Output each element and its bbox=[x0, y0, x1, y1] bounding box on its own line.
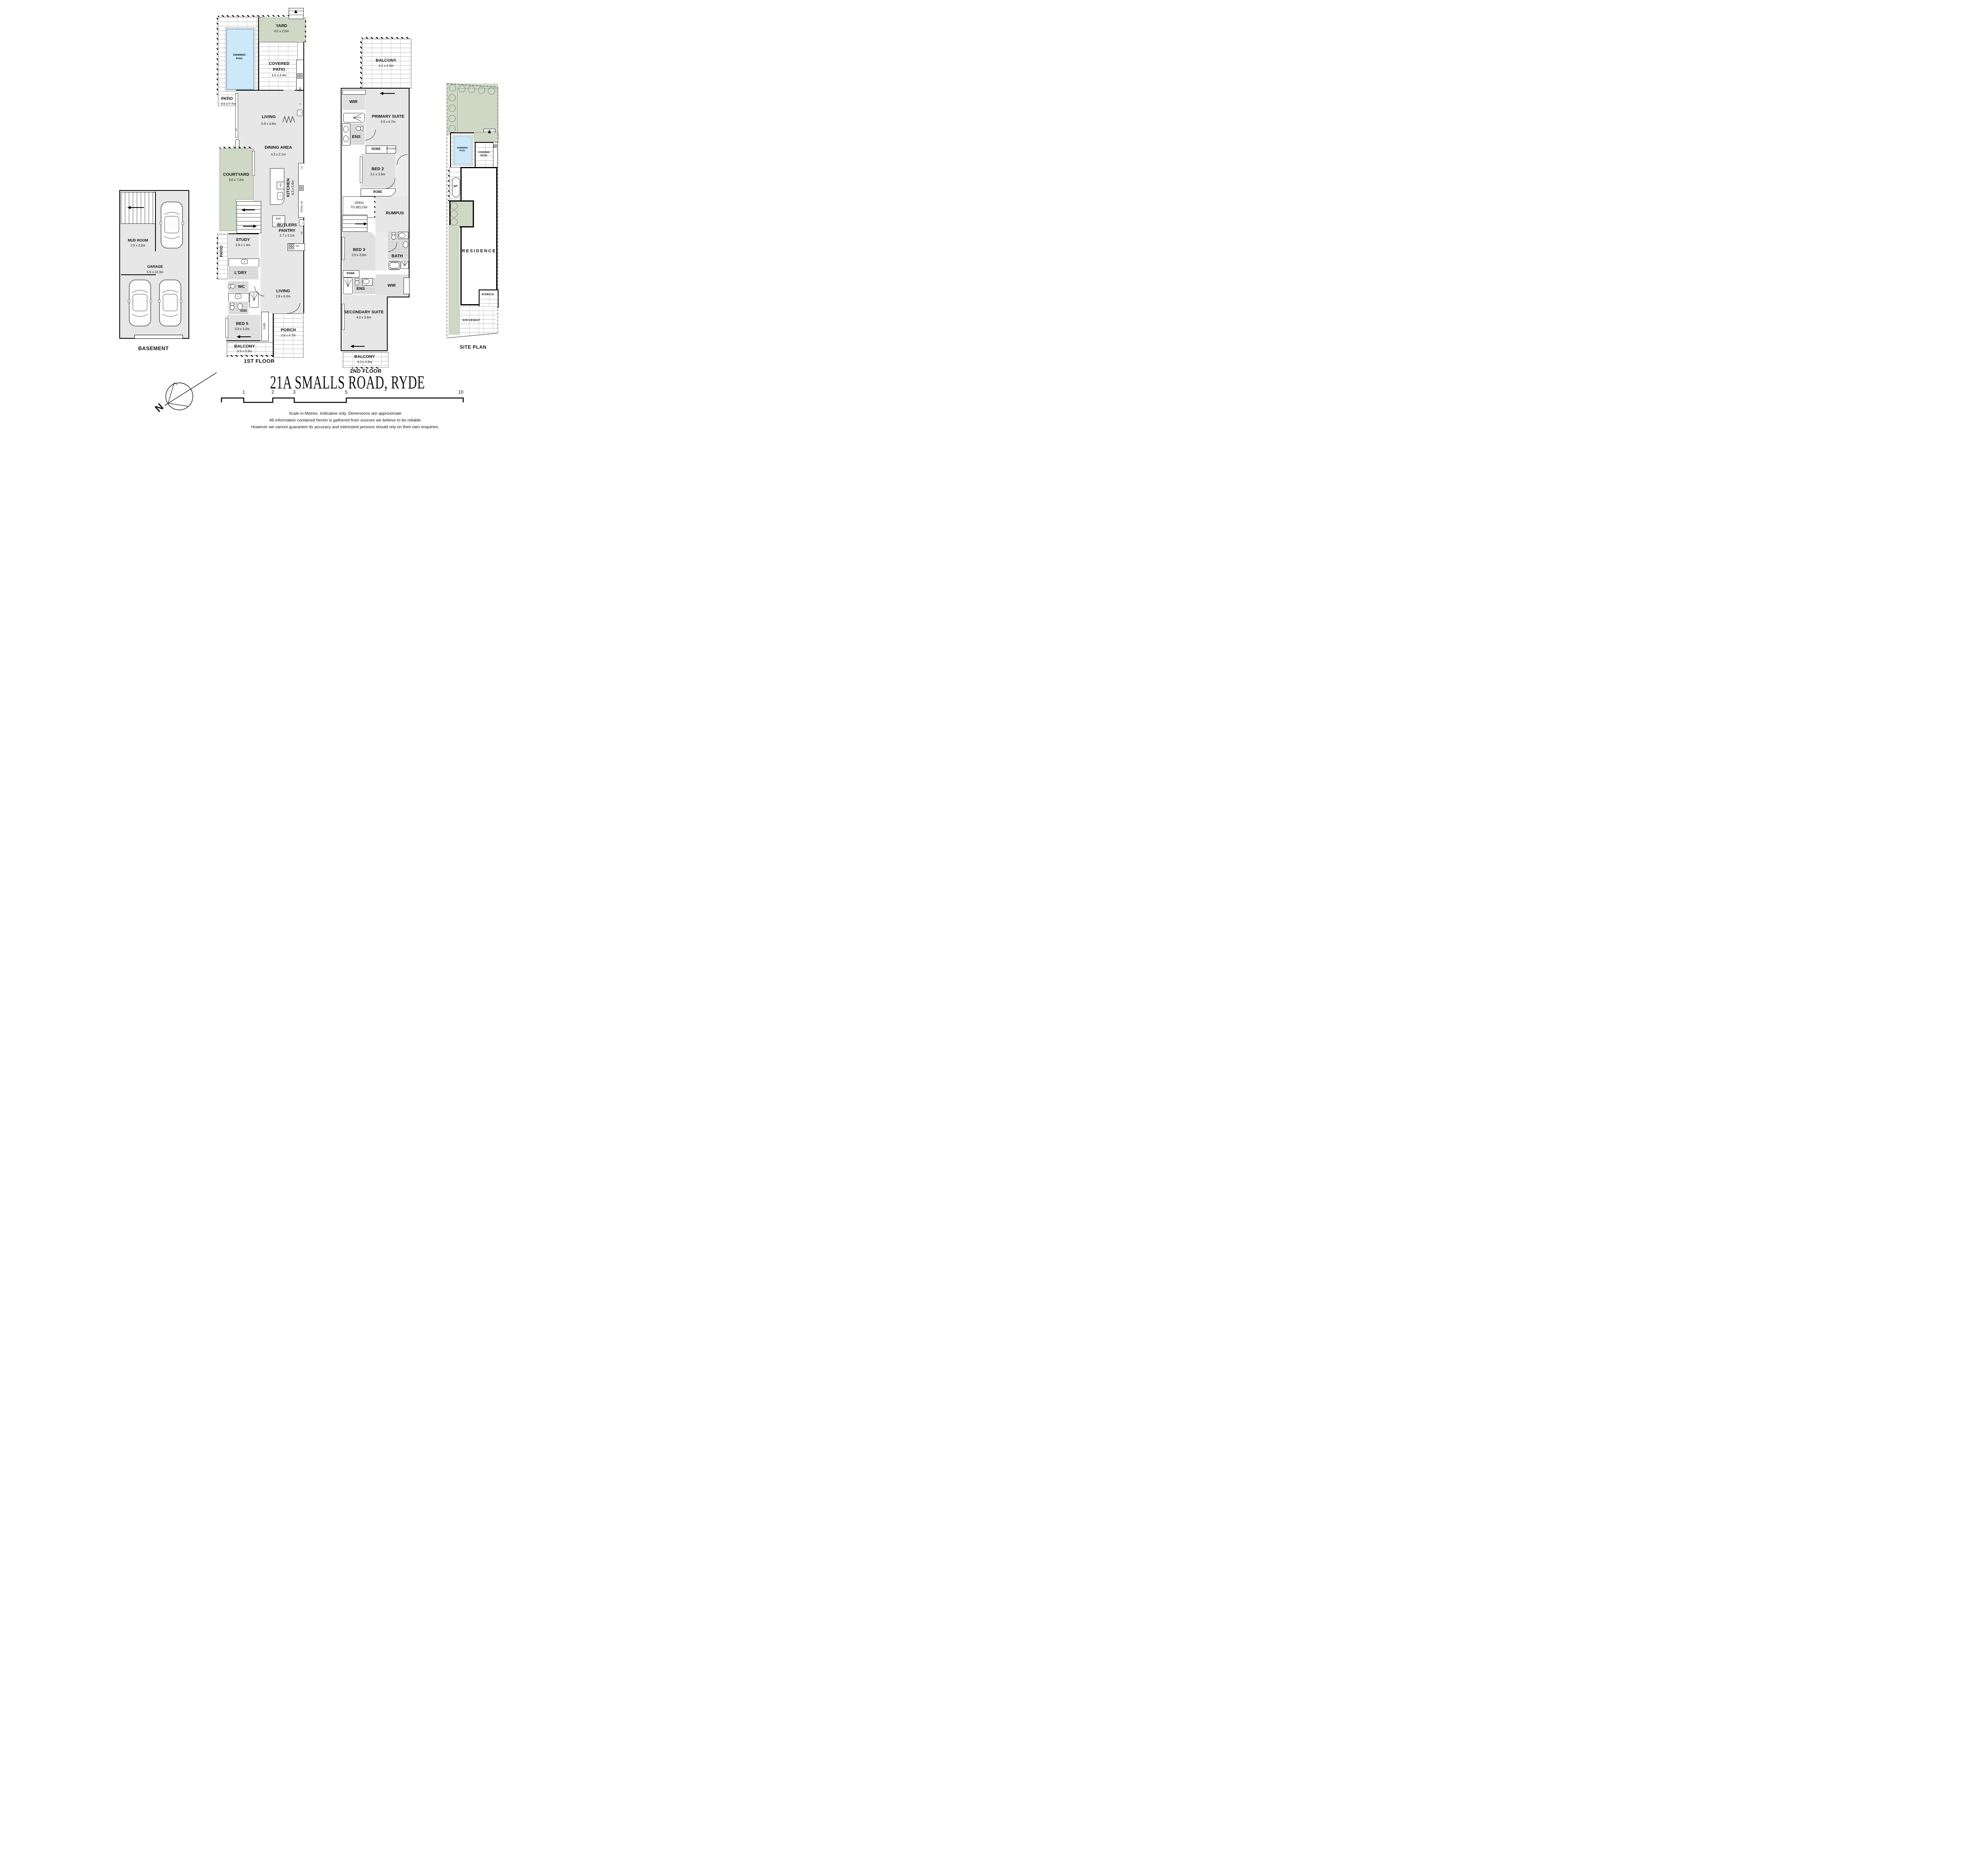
site-pool-label-1: SWIMMING bbox=[457, 147, 468, 149]
stair-arrow-head bbox=[241, 208, 245, 212]
first-floor-label: 1ST FLOOR bbox=[244, 358, 274, 364]
disclaimer-line-3: However we cannot guarantee its accuracy… bbox=[251, 425, 439, 429]
disclaimer-line-1: Scale in Metres. Indicative only. Dimens… bbox=[289, 411, 401, 416]
pool-label-1: SWIMMING bbox=[233, 54, 246, 56]
bbq-label: BBQ bbox=[298, 87, 300, 92]
pool-label-2: POOL bbox=[236, 58, 243, 60]
site-covered-label-1: COVERED bbox=[478, 151, 490, 154]
basement-floor-label: BASEMENT bbox=[138, 346, 169, 351]
primary-dims: 3.9 x 6.7m bbox=[381, 120, 395, 124]
stair-arrow bbox=[245, 210, 255, 210]
butlers-oven-label: OV bbox=[300, 231, 302, 235]
stair-arrow-head bbox=[364, 222, 367, 225]
study-label: STUDY bbox=[236, 238, 250, 242]
mud-room-dims: 2.5 x 2.0m bbox=[130, 244, 145, 247]
entry-arrow-head bbox=[237, 335, 240, 338]
stair-arrow bbox=[355, 223, 365, 224]
primary-ens-label: ENS bbox=[352, 135, 361, 139]
laundry-label: L'DRY bbox=[235, 271, 247, 275]
stair-arrow-head bbox=[294, 10, 297, 13]
site-pool-label-2: POOL bbox=[460, 150, 466, 152]
site-porch-label: PORCH bbox=[482, 293, 494, 296]
fridge-label: F bbox=[298, 103, 300, 105]
entry-arrow bbox=[353, 346, 365, 347]
wt-label: WT bbox=[454, 185, 458, 188]
porch-dims: 2.6 x 4.7m bbox=[281, 334, 295, 337]
bed5-dims: 3.9 x 3.2m bbox=[235, 328, 249, 331]
bed3-robe-label: ROBE bbox=[347, 272, 355, 275]
mud-room-label: MUD ROOM bbox=[128, 239, 148, 243]
covered-patio-dims: 4.0 x 4.4m bbox=[272, 74, 286, 77]
entry-arrow bbox=[383, 93, 395, 94]
scale-tick-2: 2 bbox=[272, 390, 274, 395]
porch-label: PORCH bbox=[281, 328, 296, 332]
bed2-robe-label: ROBE bbox=[373, 190, 382, 194]
garage-dims: 5.9 x 12.3m bbox=[147, 271, 163, 274]
bed5-ens-label: ENS bbox=[241, 309, 247, 313]
patio-dims: 3.5 x 7.7m bbox=[221, 103, 235, 106]
dresser-label: DRESSER bbox=[386, 148, 396, 150]
stair-arrow bbox=[243, 226, 253, 227]
balcony-top-dims: 4.1 x 4.3m bbox=[379, 64, 393, 68]
balcony2-dims: 4.0 x 0.9m bbox=[357, 361, 372, 364]
site-plan-label: SITE PLAN bbox=[460, 344, 486, 350]
butlers-dims: 2.7 x 3.1m bbox=[280, 234, 294, 237]
secondary-dims: 4.0 x 3.6m bbox=[356, 316, 371, 319]
side-patio-label: PATIO bbox=[220, 245, 224, 257]
stair-arrow-head bbox=[253, 225, 257, 228]
butlers-label-2: PANTRY bbox=[279, 229, 295, 233]
butlers-label-1: BUTLERS bbox=[277, 223, 297, 227]
living2-label: LIVING bbox=[276, 289, 290, 293]
covered-patio-label-2: PATIO bbox=[273, 68, 285, 72]
int-fridge-label: INT FRIDGE bbox=[300, 201, 302, 212]
bed3-dims: 2.9 x 3.9m bbox=[351, 254, 366, 257]
covered-patio-label-1: COVERED bbox=[269, 62, 289, 66]
butlers-dw-label: DW bbox=[296, 245, 299, 247]
courtyard-label: COURTYARD bbox=[223, 173, 249, 177]
scale-tick-1: 1 bbox=[243, 390, 245, 395]
bed2-label: BED 2 bbox=[372, 167, 384, 171]
open-below-label-1: OPEN bbox=[355, 202, 364, 205]
floorplan-page: { "title": "21A SMALLS ROAD, RYDE", "col… bbox=[0, 0, 623, 441]
courtyard-dims: 3.0 x 7.2m bbox=[229, 179, 243, 182]
bed3-label: BED 3 bbox=[353, 248, 365, 252]
yard-label: YARD bbox=[276, 24, 287, 28]
wc-label: WC bbox=[238, 285, 245, 289]
balcony-label: BALCONY bbox=[234, 344, 255, 349]
fireplace-label: FP bbox=[236, 128, 238, 131]
primary-label: PRIMARY SUITE bbox=[372, 115, 404, 119]
residence-label: RESIDENCE bbox=[462, 249, 497, 254]
wir2-label: WIR bbox=[388, 283, 396, 288]
patio-label: PATIO bbox=[221, 97, 233, 101]
entry-arrow-head bbox=[350, 345, 354, 348]
bed5-robe-label: ROBE bbox=[264, 322, 266, 329]
open-below-label-2: TO BELOW bbox=[351, 206, 367, 209]
living-label: LIVING bbox=[262, 115, 276, 119]
balcony-dims: 3.9 x 0.9m bbox=[237, 350, 252, 353]
bed5-label: BED 5 bbox=[236, 322, 248, 326]
living-dims: 5.9 x 4.9m bbox=[261, 122, 276, 126]
secondary-label: SECONDARY SUITE bbox=[344, 310, 384, 315]
living2-dims: 2.8 x 6.0m bbox=[276, 295, 290, 298]
kitchen-label: KITCHEN bbox=[286, 179, 291, 197]
garage-label: GARAGE bbox=[147, 265, 163, 269]
balcony2-label: BALCONY bbox=[354, 355, 375, 359]
site-covered-label-2: PATIO bbox=[480, 155, 487, 157]
stair-arrow-head bbox=[127, 206, 131, 209]
bar-label: BAR bbox=[276, 218, 281, 220]
scale-tick-5: 5 bbox=[345, 390, 348, 395]
site-driveway-label: DRIVEWAY bbox=[463, 319, 481, 322]
study-dims: 2.8 x 1.4m bbox=[235, 244, 250, 247]
dining-label: DINING AREA bbox=[264, 146, 292, 150]
scale-tick-3: 3 bbox=[293, 390, 295, 395]
butlers-fridge-label: F bbox=[275, 224, 277, 225]
yard-dims: 4.0 x 2.0m bbox=[274, 30, 289, 33]
balcony-top-label: BALCONY bbox=[376, 58, 396, 63]
bed2-dims: 3.1 x 3.6m bbox=[370, 173, 385, 176]
rumpus-label: RUMPUS bbox=[386, 211, 404, 216]
primary-wir-label: WIR bbox=[349, 100, 357, 104]
ens2-label: ENS bbox=[356, 287, 365, 291]
oven-label: OV bbox=[300, 166, 302, 169]
stair-arrow bbox=[130, 207, 144, 208]
stair-arrow-head bbox=[488, 130, 491, 133]
bath-label: BATH bbox=[392, 254, 403, 258]
robe-label: ROBE bbox=[371, 148, 381, 151]
entry-arrow-head bbox=[380, 92, 383, 95]
dw-label: DW bbox=[279, 183, 281, 187]
kitchen-dims: 4.3 x 5.6m bbox=[291, 180, 295, 195]
disclaimer-line-2: All information contained herein is gath… bbox=[269, 418, 421, 423]
scale-tick-10: 10 bbox=[458, 390, 464, 395]
entry-arrow bbox=[240, 336, 251, 337]
dining-dims: 4.3 x 2.1m bbox=[271, 153, 285, 156]
